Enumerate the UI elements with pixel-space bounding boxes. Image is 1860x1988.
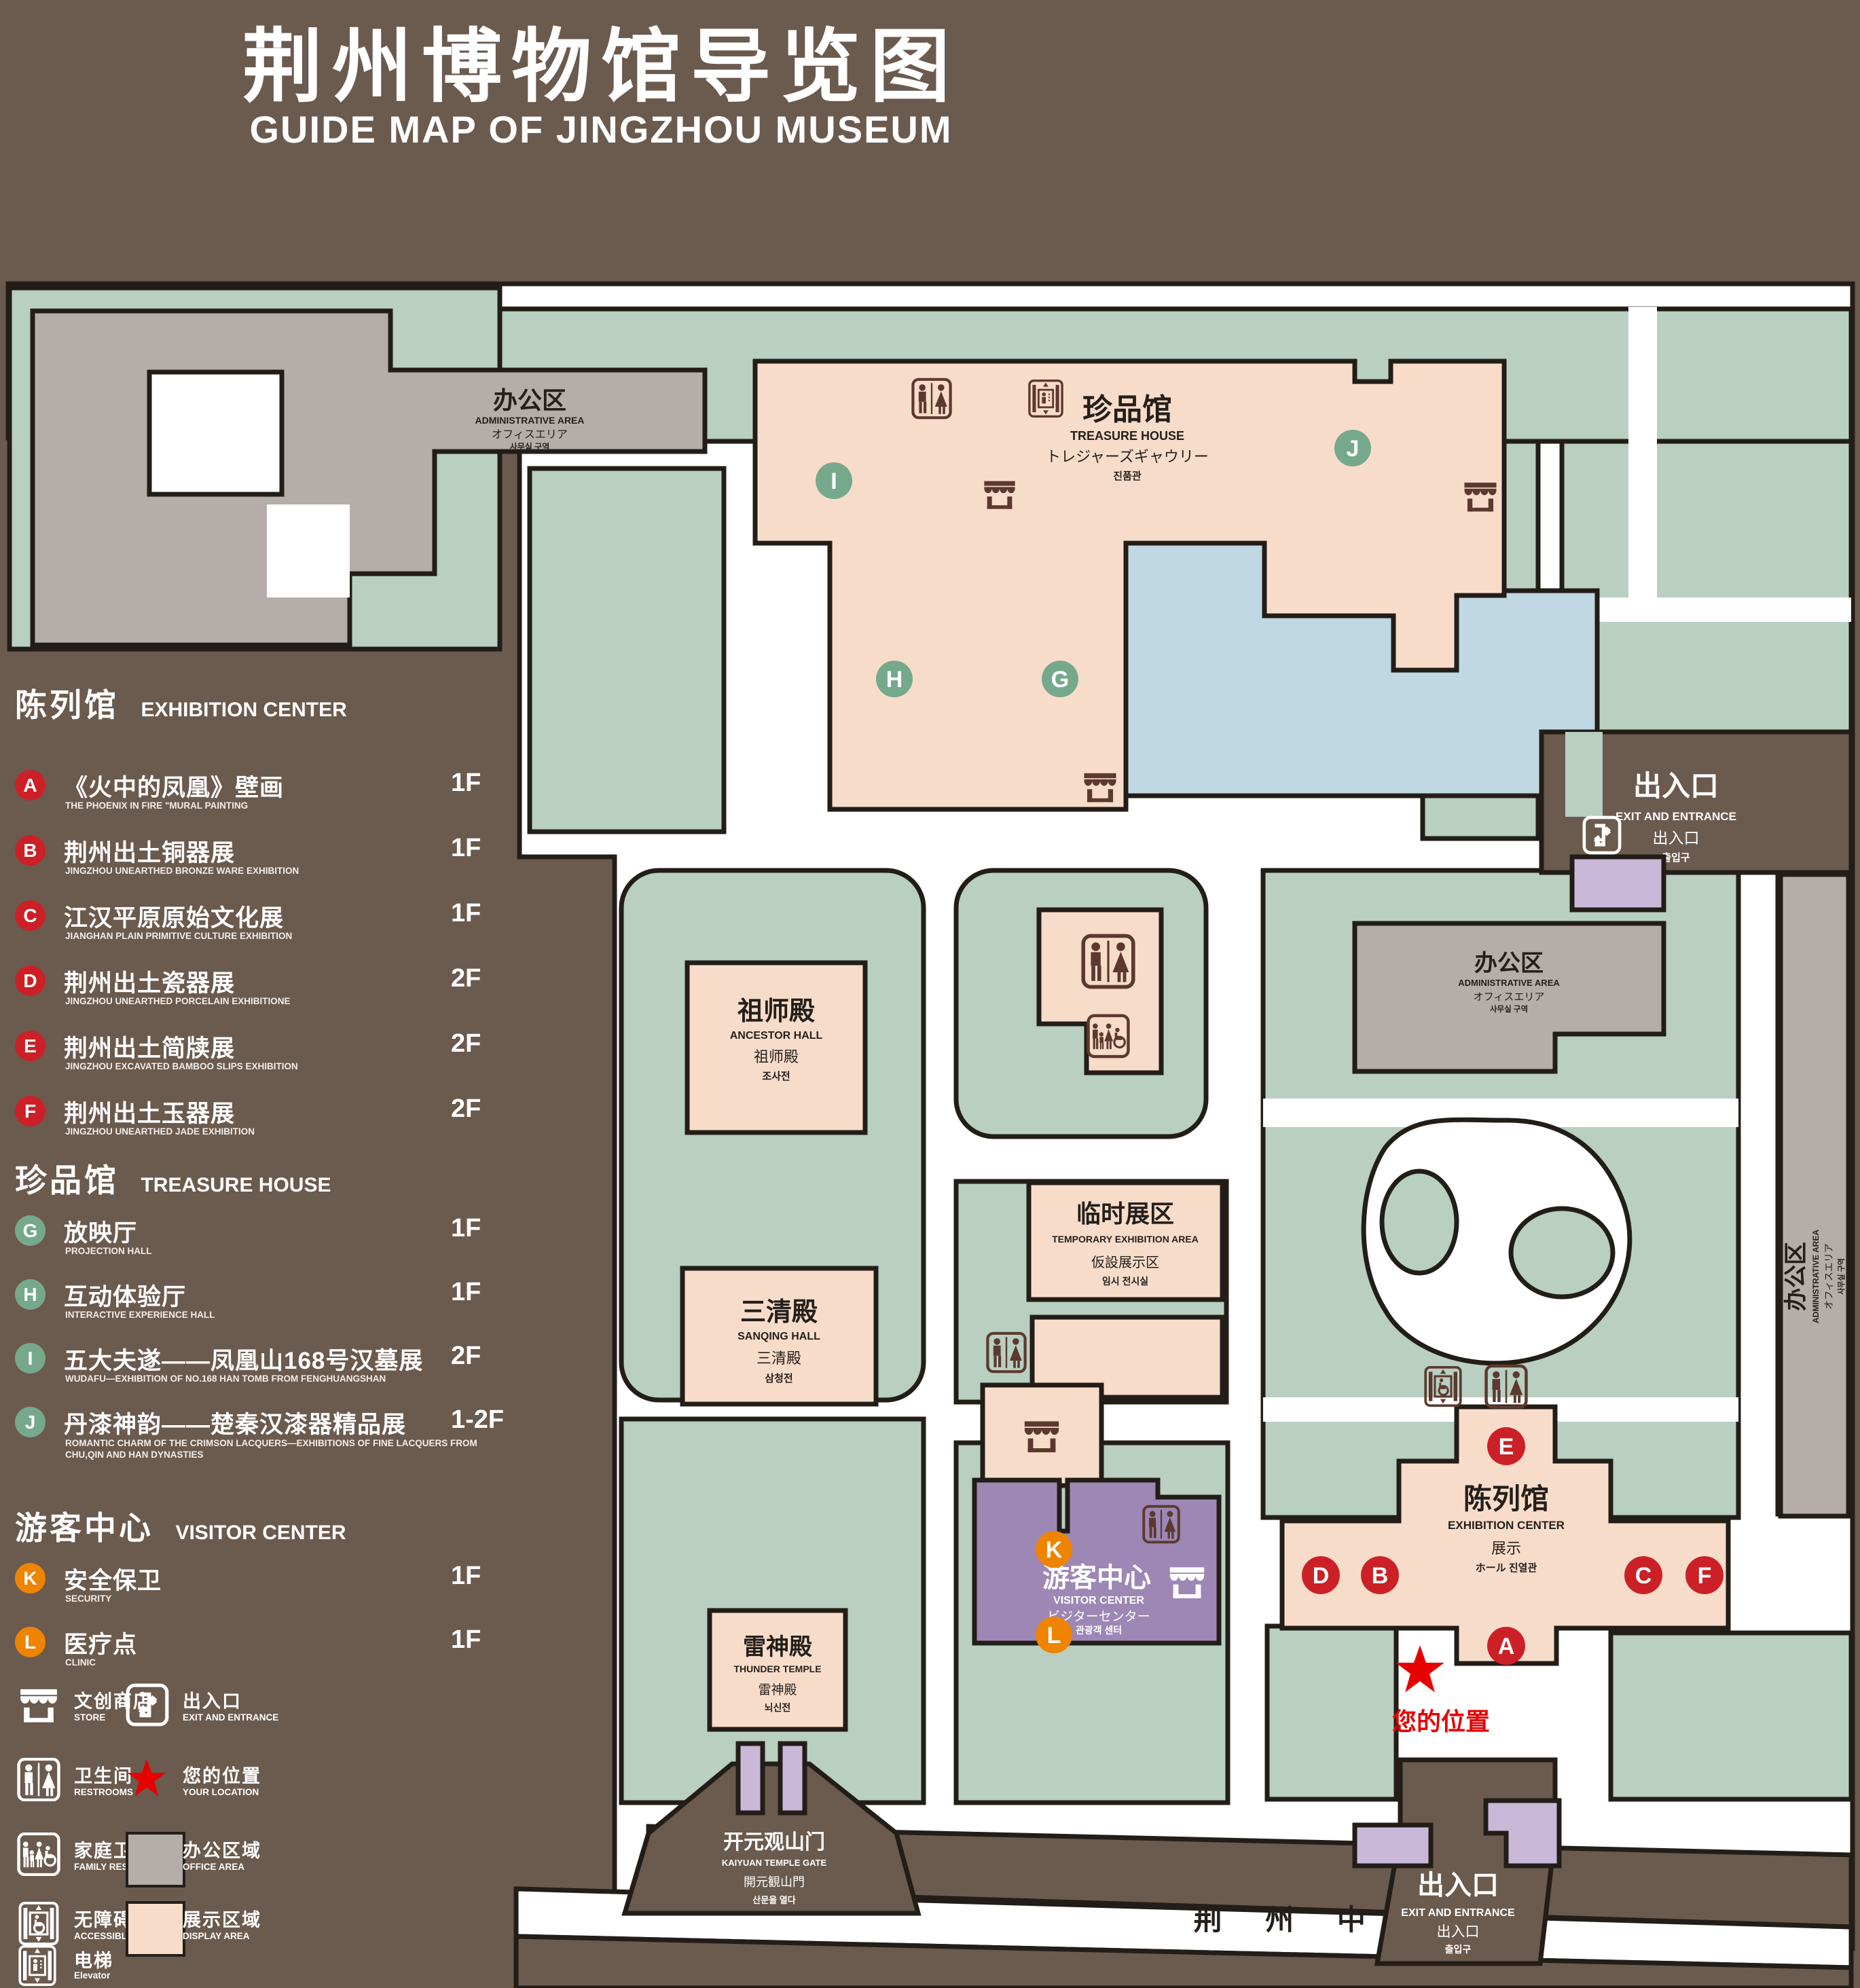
admin-courtyard [149, 372, 282, 494]
admin2-en: ADMINISTRATIVE AREA [1458, 978, 1560, 988]
admin3-zh: 办公区 [1783, 1242, 1809, 1311]
badge-l: L [15, 1627, 45, 1657]
badge-f: F [15, 1096, 45, 1126]
svg-text:F: F [1698, 1563, 1712, 1589]
section-title-en: TREASURE HOUSE [141, 1174, 331, 1196]
office-area-swatch [126, 1832, 185, 1888]
legend-item-f: F 荆州出土玉器展 JINGZHOU UNEARTHED JADE EXHIBI… [15, 1094, 517, 1157]
gate-ko: 산문을 열다 [752, 1895, 795, 1905]
floor-label: 1F [451, 1562, 481, 1591]
section-title-en: VISITOR CENTER [175, 1522, 346, 1544]
accessible-elevator-icon [1425, 1367, 1461, 1405]
admin1-zh: 办公区 [493, 386, 566, 414]
visitor-ko: 관광객 센터 [1076, 1625, 1122, 1636]
elevator-icon [17, 1945, 58, 1987]
garden-island-east [1511, 1209, 1613, 1297]
exit-icon [126, 1682, 169, 1727]
ancestor-en: ANCESTOR HALL [730, 1030, 823, 1042]
guide-map-poster: 荆州博物馆导览图 GUIDE MAP OF JINGZHOU MUSEUM [0, 0, 1860, 1988]
floor-label: 2F [451, 1029, 481, 1059]
admin3-ko: 사무실 구역 [1836, 1258, 1846, 1295]
east-exit-en: EXIT AND ENTRANCE [1616, 810, 1736, 823]
legend-item-c: C 江汉平原原始文化展 JIANGHAN PLAIN PRIMITIVE CUL… [15, 899, 517, 961]
map-marker-a: A [1487, 1627, 1525, 1665]
store-icon [17, 1682, 60, 1727]
map-marker-j: J [1334, 430, 1371, 466]
badge-c: C [15, 900, 45, 931]
map-marker-i: I [816, 462, 852, 499]
map-marker-f: F [1685, 1556, 1724, 1594]
gate-en: KAIYUAN TEMPLE GATE [722, 1858, 827, 1868]
badge-j: J [15, 1407, 45, 1437]
visitor-en: VISITOR CENTER [1053, 1595, 1144, 1606]
svg-text:D: D [1313, 1563, 1330, 1589]
exhibition-ko: ホール 진열관 [1476, 1562, 1537, 1574]
east-exit-ja: 出入口 [1653, 829, 1700, 847]
legend-item-g: G 放映厅 PROJECTION HALL 1F [15, 1214, 517, 1276]
badge-h: H [15, 1279, 45, 1310]
floor-label: 1F [451, 1278, 481, 1307]
map-marker-d: D [1302, 1556, 1340, 1594]
gate-pillar-east [780, 1744, 805, 1813]
legend-section-exhibition-header: 陈列馆 EXHIBITION CENTER [15, 679, 347, 726]
east-exit-building [1572, 857, 1664, 910]
south-exit-zh: 出入口 [1417, 1871, 1499, 1900]
badge-d: D [15, 965, 45, 996]
elevator-icon [1029, 381, 1062, 417]
ancestor-ja: 祖师殿 [754, 1048, 799, 1065]
temp-en: TEMPORARY EXHIBITION AREA [1052, 1234, 1199, 1245]
thunder-en: THUNDER TEMPLE [733, 1663, 821, 1674]
temp-ja: 仮設展示区 [1091, 1255, 1159, 1270]
treasure-en: TREASURE HOUSE [1070, 429, 1184, 443]
restroom-icon [17, 1757, 60, 1802]
svg-text:L: L [1047, 1623, 1061, 1649]
admin2-ja: オフィスエリア [1474, 991, 1545, 1003]
floor-label: 2F [451, 1094, 481, 1124]
thunder-ja: 雷神殿 [758, 1682, 797, 1697]
floor-label: 2F [451, 1342, 481, 1371]
south-exit-en: EXIT AND ENTRANCE [1401, 1907, 1515, 1919]
family-restroom-icon [17, 1832, 60, 1877]
legend-item-k: K 安全保卫 SECURITY 1F [15, 1562, 517, 1624]
ancestor-zh: 祖师殿 [737, 997, 815, 1026]
gate-ja: 開元観山門 [744, 1875, 805, 1889]
park-bottom-left [1267, 1626, 1396, 1799]
legend-item-l: L 医疗点 CLINIC 1F [15, 1625, 517, 1688]
admin-building-right-strip: 办公区 ADMINISTRATIVE AREA オフィスエリア 사무실 구역 [1781, 875, 1848, 1516]
admin1-ko: 사무실 구역 [510, 441, 550, 452]
section-title-zh: 陈列馆 [15, 687, 119, 723]
sanqing-en: SANQING HALL [737, 1331, 820, 1342]
temporary-exhibition-building: 临时展区 TEMPORARY EXHIBITION AREA 仮設展示区 임시 … [1029, 1183, 1222, 1300]
map-marker-e: E [1487, 1427, 1525, 1465]
map-marker-h: H [876, 661, 913, 697]
visitor-zh: 游客中心 [1042, 1563, 1151, 1593]
badge-k: K [15, 1563, 45, 1594]
temp-zh: 临时展区 [1076, 1200, 1174, 1228]
legend-item-a: A 《火中的凤凰》壁画 THE PHOENIX IN FIRE "MURAL P… [15, 769, 517, 831]
legend-item-b: B 荆州出土铜器展 JINGZHOU UNEARTHED BRONZE WARE… [15, 834, 517, 896]
floor-label: 1-2F [451, 1405, 504, 1435]
admin-path [267, 504, 350, 597]
south-exit-ja: 出入口 [1437, 1924, 1480, 1940]
admin1-en: ADMINISTRATIVE AREA [475, 415, 585, 426]
map-marker-b: B [1361, 1556, 1399, 1594]
sanqing-zh: 三清殿 [740, 1298, 818, 1327]
thunder-zh: 雷神殿 [743, 1634, 812, 1660]
legend-item-h: H 互动体验厅 INTERACTIVE EXPERIENCE HALL 1F [15, 1278, 517, 1340]
map-marker-g: G [1042, 661, 1078, 697]
section-title-zh: 珍品馆 [15, 1162, 119, 1198]
legend-section-treasure-header: 珍品馆 TREASURE HOUSE [15, 1154, 331, 1201]
admin3-en: ADMINISTRATIVE AREA [1811, 1230, 1821, 1323]
east-exit-ko: 출입구 [1662, 852, 1690, 864]
park-mid-left [530, 468, 724, 832]
badge-e: E [15, 1031, 45, 1061]
svg-text:E: E [1499, 1434, 1514, 1460]
section-title-zh: 游客中心 [15, 1510, 153, 1546]
badge-i: I [15, 1343, 45, 1374]
exit-building-west [1355, 1825, 1431, 1866]
exhibition-zh: 陈列馆 [1463, 1483, 1549, 1515]
temp-ko: 임시 전시실 [1102, 1276, 1148, 1287]
svg-text:I: I [831, 468, 837, 494]
ancestor-hall-building: 祖师殿 ANCESTOR HALL 祖师殿 조사전 [687, 963, 865, 1133]
park-top-right [1562, 441, 1851, 732]
thunder-temple-building: 雷神殿 THUNDER TEMPLE 雷神殿 뇌신전 [710, 1610, 845, 1729]
legend-item-j: J 丹漆神韵——楚秦汉漆器精品展 ROMANTIC CHARM OF THE C… [15, 1405, 517, 1468]
map-marker-k: K [1036, 1531, 1072, 1568]
visitor-center-building: 游客中心 VISITOR CENTER ビジターセンター 관광객 센터 [974, 1480, 1219, 1643]
floor-label: 1F [451, 1214, 481, 1243]
floor-label: 1F [451, 1625, 481, 1655]
svg-text:K: K [1046, 1537, 1063, 1563]
svg-text:A: A [1498, 1634, 1515, 1659]
ancestor-ko: 조사전 [762, 1071, 790, 1082]
svg-text:J: J [1347, 436, 1360, 462]
east-exit-zh: 出入口 [1633, 770, 1719, 802]
east-exit-green [1565, 732, 1603, 817]
exhibition-ja: 展示 [1491, 1540, 1521, 1557]
sanqing-hall-building: 三清殿 SANQING HALL 三清殿 삼청전 [682, 1268, 876, 1404]
admin3-ja: オフィスエリア [1823, 1243, 1834, 1310]
exhibition-en: EXHIBITION CENTER [1448, 1519, 1565, 1532]
admin2-ko: 사무실 구역 [1490, 1004, 1528, 1014]
section-title-en: EXHIBITION CENTER [141, 699, 346, 721]
floor-label: 1F [451, 834, 481, 863]
your-location-label: 您的位置 [1392, 1708, 1490, 1735]
treasure-ja: トレジャーズギャウリー [1046, 448, 1209, 465]
floor-label: 1F [451, 899, 481, 928]
park-bottom-right [1611, 1633, 1851, 1799]
store-building [983, 1385, 1101, 1486]
treasure-zh: 珍品馆 [1082, 393, 1172, 426]
badge-b: B [15, 835, 45, 866]
legend-item-e: E 荆州出土简牍展 JINGZHOU EXCAVATED BAMBOO SLIP… [15, 1029, 517, 1092]
badge-g: G [15, 1215, 45, 1246]
sanqing-ko: 삼청전 [765, 1373, 792, 1384]
legend-item-d: D 荆州出土瓷器展 JINGZHOU UNEARTHED PORCELAIN E… [15, 964, 517, 1027]
south-exit-ko: 출입구 [1445, 1944, 1472, 1955]
legend-section-visitor-header: 游客中心 VISITOR CENTER [15, 1502, 346, 1549]
map-marker-l: L [1036, 1617, 1072, 1653]
admin1-ja: オフィスエリア [492, 429, 568, 441]
gate-pillar-west [738, 1744, 763, 1813]
star-icon [126, 1757, 168, 1799]
treasure-ko: 진품관 [1113, 471, 1142, 482]
svg-text:C: C [1635, 1563, 1652, 1589]
badge-a: A [15, 770, 45, 800]
floor-label: 2F [451, 964, 481, 993]
gate-zh: 开元观山门 [723, 1831, 825, 1854]
floor-label: 1F [451, 769, 481, 798]
display-area-swatch [126, 1901, 185, 1957]
admin2-zh: 办公区 [1474, 951, 1544, 976]
thunder-ko: 뇌신전 [765, 1702, 791, 1713]
sanqing-ja: 三清殿 [756, 1350, 801, 1367]
accessible-elevator-icon [17, 1901, 60, 1946]
legend-item-i: I 五大夫遂——凤凰山168号汉墓展 WUDAFU—EXHIBITION OF … [15, 1342, 517, 1404]
svg-text:G: G [1051, 667, 1069, 693]
svg-text:B: B [1372, 1563, 1389, 1589]
svg-text:H: H [886, 667, 903, 693]
garden-island-west [1382, 1171, 1457, 1273]
path-cut-1 [1628, 307, 1657, 606]
map-marker-c: C [1624, 1556, 1662, 1594]
